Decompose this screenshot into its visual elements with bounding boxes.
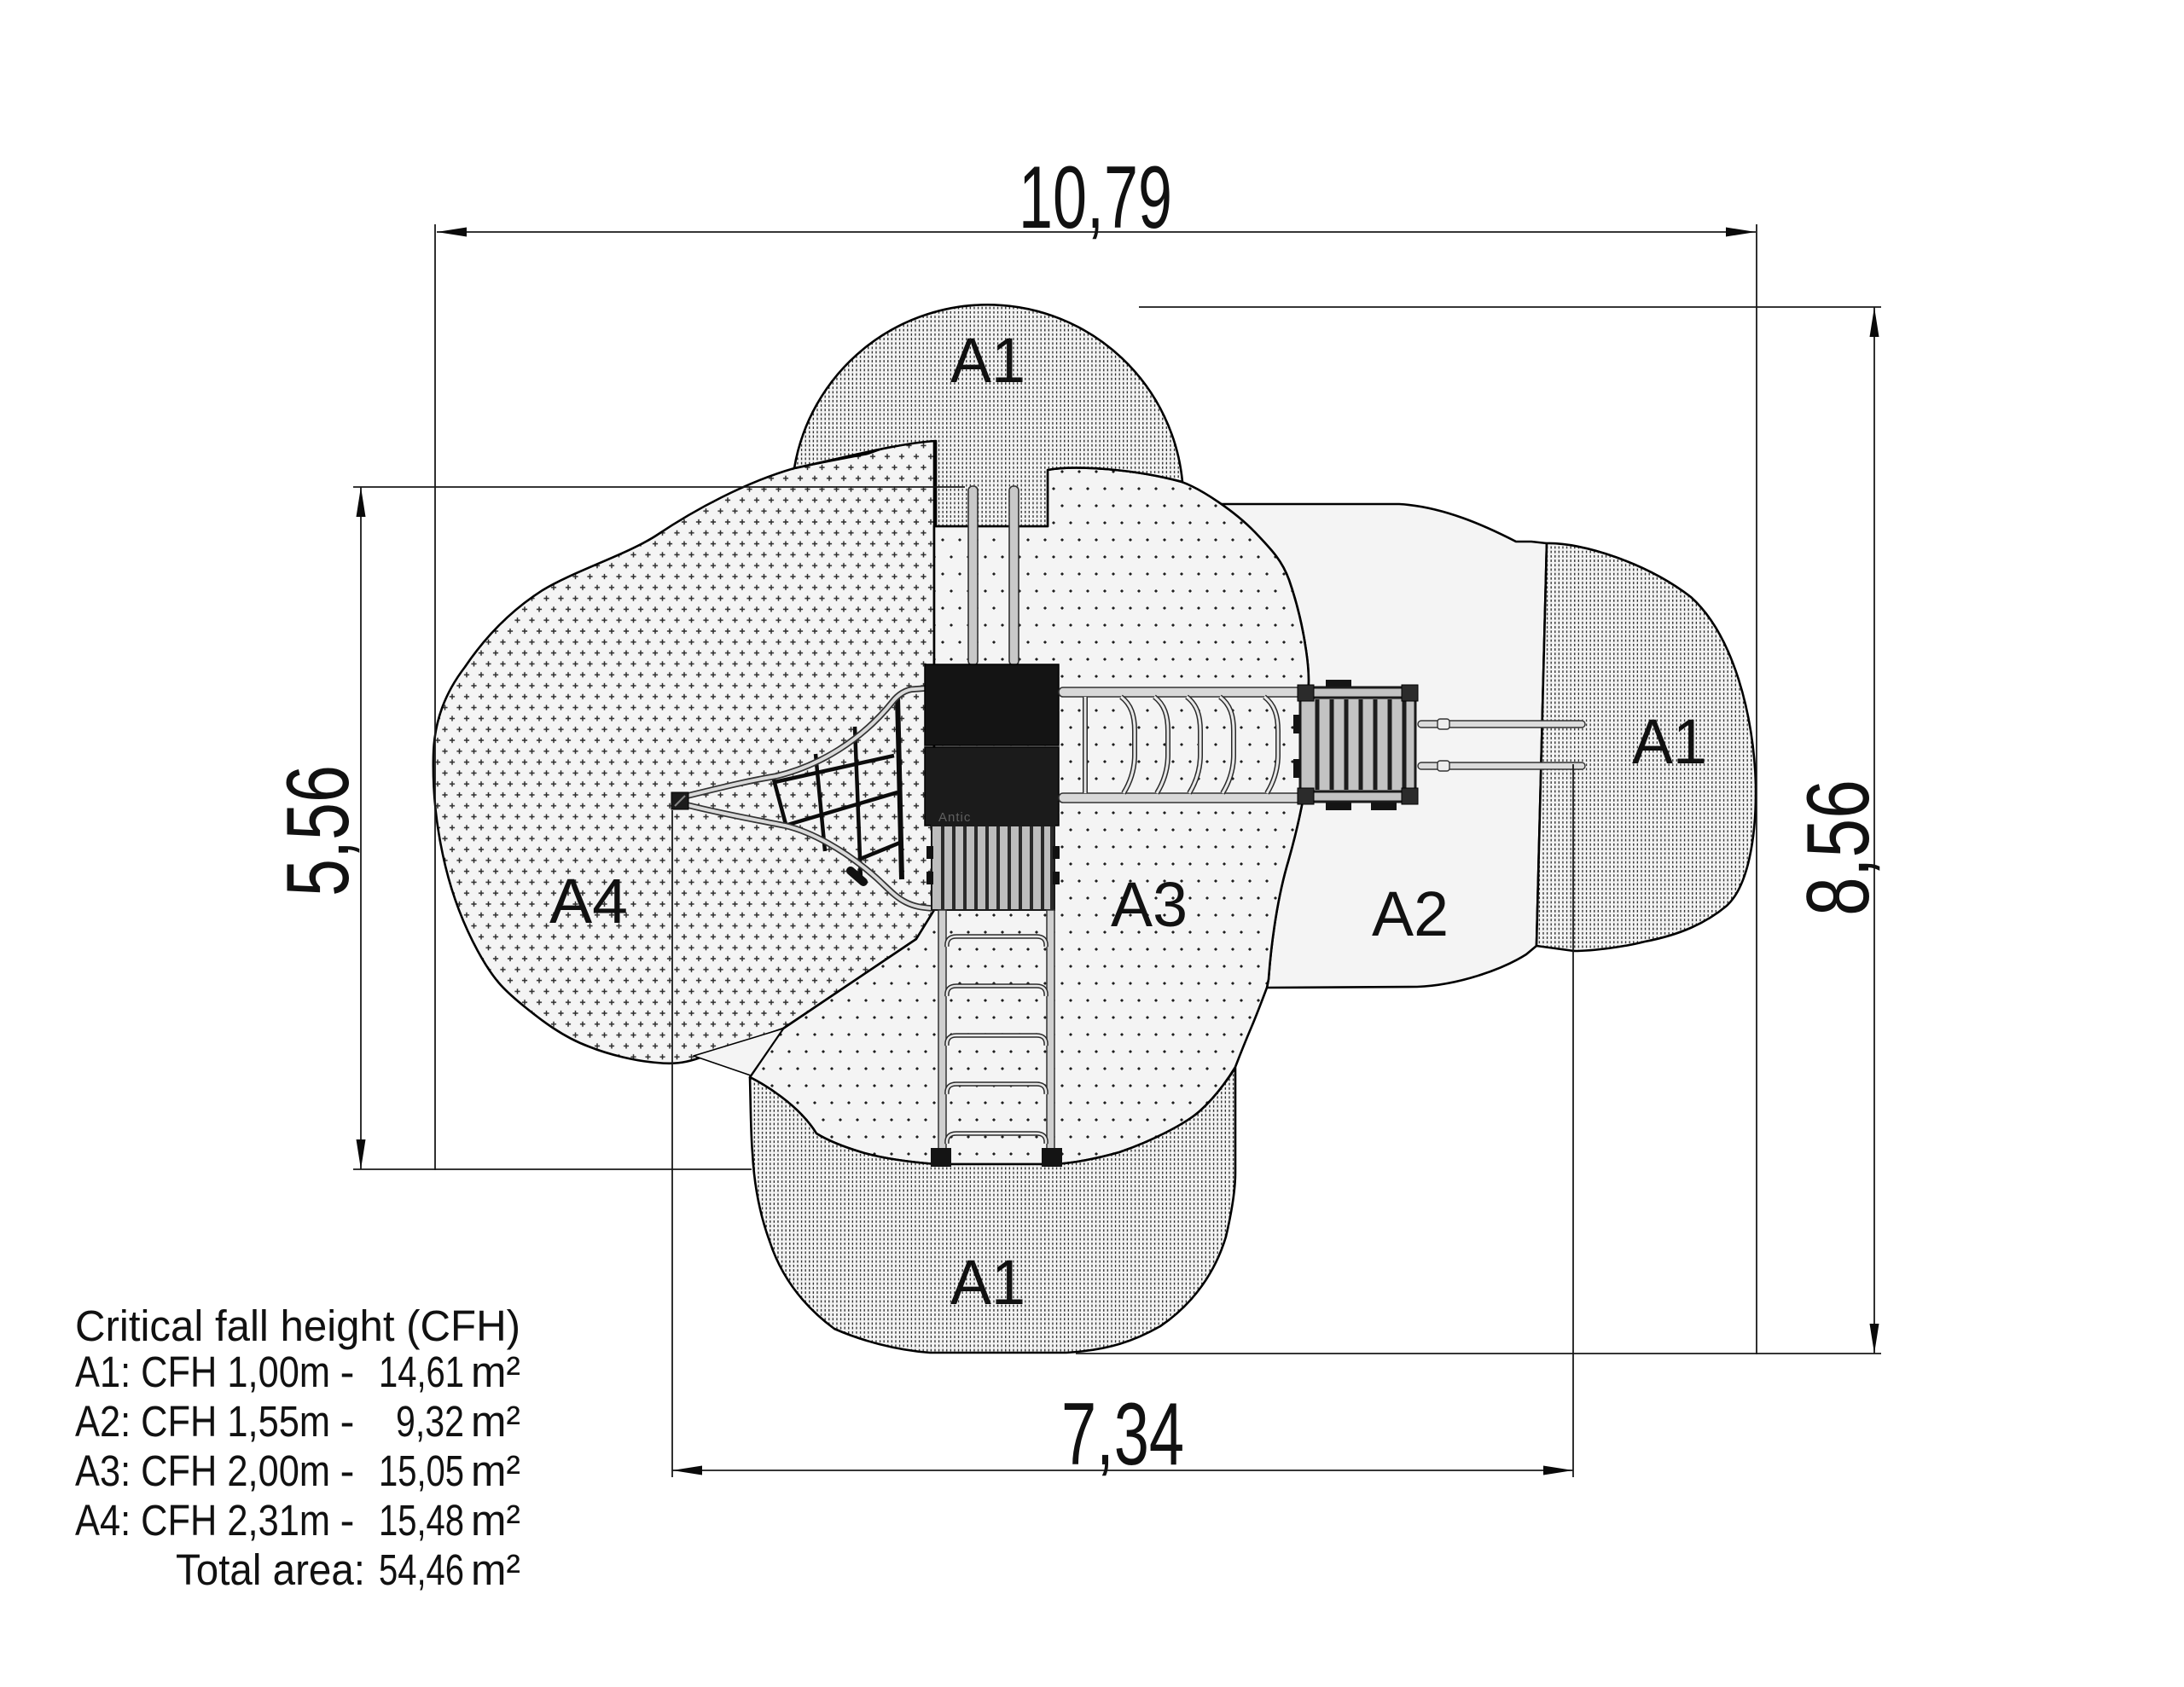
svg-text:8,56: 8,56 [1789, 780, 1888, 916]
svg-text:-: - [340, 1397, 355, 1446]
svg-text:m²: m² [471, 1545, 520, 1594]
svg-text:7,34: 7,34 [1061, 1385, 1184, 1484]
svg-text:10,79: 10,79 [1019, 148, 1172, 247]
svg-text:Critical fall height (CFH): Critical fall height (CFH) [75, 1301, 520, 1350]
svg-text:14,61: 14,61 [379, 1348, 464, 1396]
svg-text:A2: A2 [1372, 878, 1449, 949]
svg-text:A1: A1 [950, 1247, 1025, 1318]
svg-text:15,48: 15,48 [379, 1496, 464, 1545]
svg-text:Total area:: Total area: [176, 1545, 365, 1594]
svg-text:-: - [340, 1348, 355, 1396]
svg-text:54,46: 54,46 [379, 1545, 464, 1594]
svg-text:m²: m² [471, 1397, 520, 1446]
svg-text:A1: A1 [1632, 706, 1707, 777]
svg-text:m²: m² [471, 1348, 520, 1396]
svg-text:A1: A1 [950, 325, 1025, 396]
svg-text:9,32: 9,32 [396, 1397, 464, 1446]
svg-text:Antic: Antic [938, 810, 971, 825]
svg-text:A2: CFH 1,55m: A2: CFH 1,55m [75, 1397, 330, 1446]
svg-text:A4: CFH 2,31m: A4: CFH 2,31m [75, 1496, 330, 1545]
svg-text:-: - [340, 1496, 355, 1545]
svg-text:m²: m² [471, 1446, 520, 1495]
svg-text:5,56: 5,56 [269, 765, 368, 896]
svg-text:A1: CFH 1,00m: A1: CFH 1,00m [75, 1348, 330, 1396]
svg-text:A3: CFH 2,00m: A3: CFH 2,00m [75, 1446, 330, 1495]
svg-text:-: - [340, 1446, 355, 1495]
svg-text:A4: A4 [549, 866, 628, 936]
svg-text:15,05: 15,05 [379, 1446, 464, 1495]
svg-text:m²: m² [471, 1496, 520, 1545]
svg-text:A3: A3 [1111, 869, 1188, 940]
